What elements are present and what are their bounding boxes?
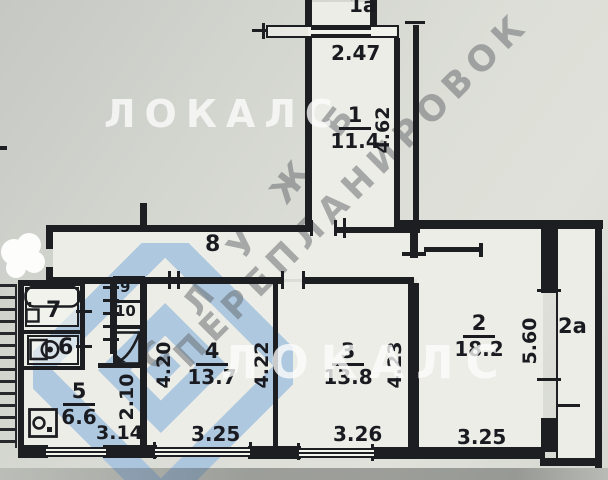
dim-room-2-width: 3.25	[457, 427, 506, 447]
dim-room-4-left-depth: 4.20	[153, 337, 173, 393]
wall-segment	[413, 25, 419, 222]
dim-room-2-depth: 5.60	[519, 313, 539, 369]
dim-room-4-width: 3.25	[191, 424, 240, 444]
window-symbol	[46, 447, 106, 457]
door-window-tick	[537, 289, 561, 292]
floorplan-scan: С Л У Ж Б ПЕРЕПЛАНИРОВОК ЛОКАЛС ЛОКАЛС 1…	[0, 0, 608, 480]
door-window-tick	[0, 146, 7, 150]
wall-segment	[248, 446, 301, 459]
wall-segment	[305, 0, 312, 26]
room-label-balcony-2a: 2а	[558, 316, 587, 337]
wall-segment	[303, 277, 414, 284]
dim-room-5-width: 3.14	[96, 424, 143, 443]
room-label-closet-9: 9	[120, 280, 130, 295]
door-window-tick	[281, 271, 284, 289]
room-5-number: 5	[63, 380, 96, 406]
wall-segment	[18, 445, 48, 458]
door-window-tick	[402, 252, 426, 256]
room-fill	[557, 227, 596, 459]
white-blob-overlay	[0, 228, 52, 286]
door-window-tick	[302, 271, 305, 289]
door-window-tick	[76, 310, 92, 313]
wall-segment	[103, 445, 157, 458]
toilet-icon	[29, 336, 61, 363]
door-window-tick	[103, 286, 119, 289]
shower-tray-icon	[113, 331, 141, 365]
wall-segment	[22, 366, 82, 370]
brand-watermark-center: ЛОКАЛС	[221, 336, 511, 389]
window-symbol	[155, 447, 250, 457]
door-window-tick	[343, 218, 346, 238]
room-label-bathroom-7: 7	[46, 300, 61, 322]
room-label-balcony-1a: 1а	[349, 0, 376, 15]
door-window-tick	[76, 345, 92, 348]
door-window-tick	[556, 404, 580, 407]
dim-room-5-depth: 2.10	[116, 369, 136, 425]
sink-icon	[25, 308, 40, 323]
wall-segment	[556, 228, 558, 458]
room-2-number: 2	[463, 312, 496, 338]
door-window-tick	[168, 271, 171, 289]
staircase-symbol	[0, 284, 17, 448]
dim-room-1-depth: 4.62	[372, 102, 392, 158]
door-window-tick	[310, 220, 313, 236]
wall-segment	[311, 26, 371, 30]
wall-segment	[541, 228, 556, 293]
brand-watermark-top: ЛОКАЛС	[104, 92, 342, 136]
wall-segment	[53, 225, 313, 232]
dim-room-3-width: 3.26	[333, 424, 382, 444]
wall-segment	[540, 458, 602, 466]
door-window-tick	[537, 378, 561, 381]
room-label-wc-6: 6	[58, 337, 73, 359]
door-window-tick	[103, 325, 119, 328]
wall-segment	[424, 247, 480, 252]
room-1-number: 1	[339, 104, 372, 130]
wall-segment	[22, 330, 82, 334]
dim-balcony-1a-width: 2.47	[331, 43, 380, 63]
room-label-corridor-8: 8	[205, 234, 220, 256]
door-window-tick	[334, 220, 337, 236]
scan-shadow	[0, 468, 608, 480]
wall-segment	[595, 224, 602, 468]
door-window-tick	[177, 271, 180, 289]
room-label-closet-10: 10	[115, 304, 136, 319]
wall-segment	[405, 21, 425, 24]
door-window-tick	[479, 243, 483, 257]
wall-segment	[398, 220, 603, 229]
wall-segment	[140, 203, 147, 227]
window-symbol	[299, 448, 374, 458]
door-window-tick	[252, 29, 266, 32]
wall-segment	[394, 38, 400, 228]
wall-segment	[311, 34, 371, 38]
